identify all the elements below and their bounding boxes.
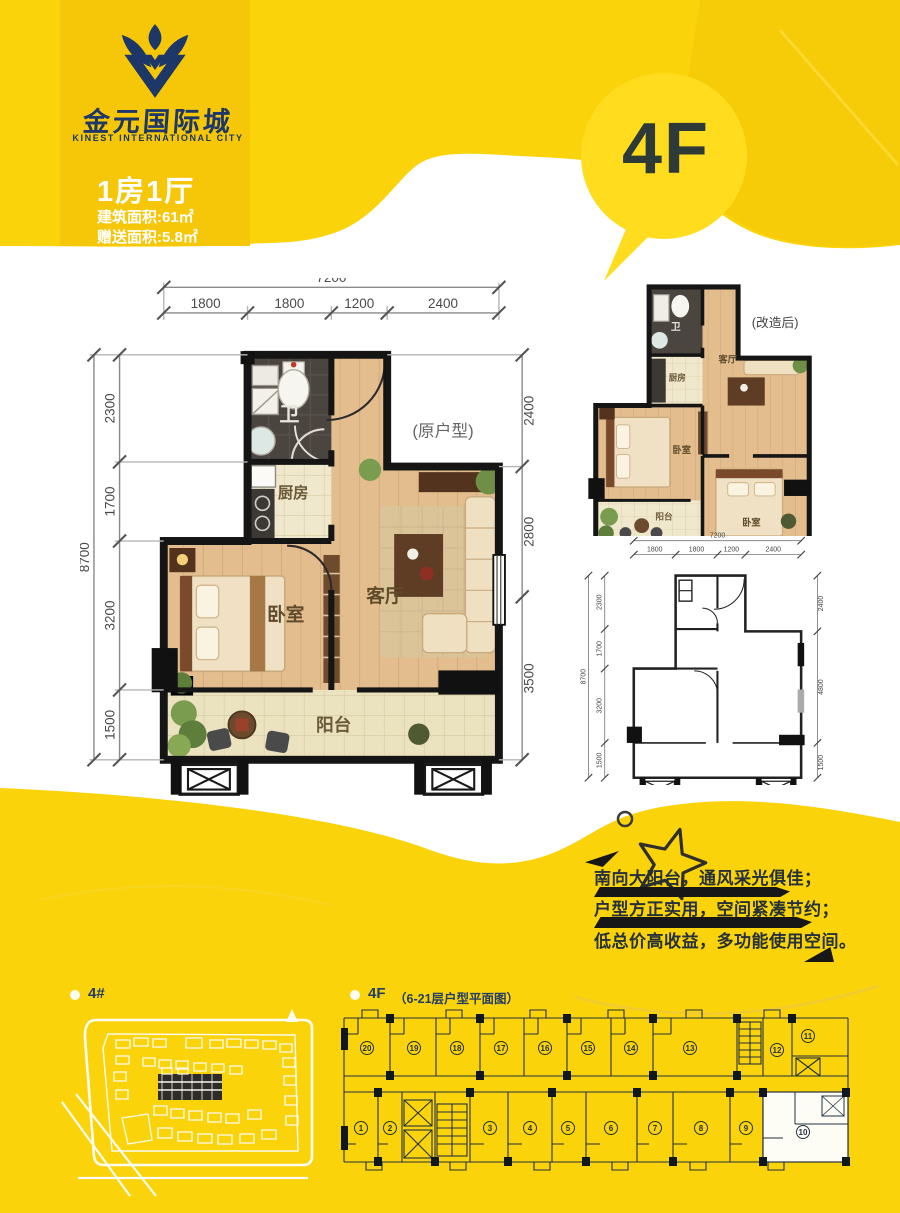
svg-text:2: 2 (388, 1124, 393, 1133)
svg-text:11: 11 (804, 1032, 813, 1041)
svg-text:3: 3 (488, 1124, 493, 1133)
svg-text:4800: 4800 (818, 679, 825, 695)
svg-text:2300: 2300 (102, 393, 117, 423)
svg-text:2800: 2800 (521, 517, 536, 547)
floor-plate-plan: 20 19 18 17 16 15 14 13 12 11 1 2 3 4 5 … (340, 1008, 900, 1200)
svg-text:7: 7 (653, 1124, 658, 1133)
svg-text:17: 17 (497, 1044, 506, 1053)
svg-text:2400: 2400 (428, 296, 458, 311)
gift-area-text: 赠送面积:5.8㎡ (97, 226, 198, 247)
svg-text:(改造后): (改造后) (752, 315, 799, 330)
svg-text:1700: 1700 (597, 641, 604, 657)
svg-text:厨房: 厨房 (278, 483, 309, 502)
floor-bubble-tail (604, 222, 654, 281)
svg-text:1500: 1500 (818, 755, 825, 771)
svg-text:阳台: 阳台 (316, 714, 351, 735)
plate-unit-numbers: 20 19 18 17 16 15 14 13 12 11 1 2 3 4 5 … (355, 1030, 815, 1139)
svg-text:4: 4 (528, 1124, 533, 1133)
svg-text:1200: 1200 (724, 546, 740, 553)
svg-text:12: 12 (773, 1046, 782, 1055)
brand-logo-icon (110, 22, 200, 100)
svg-text:7200: 7200 (316, 278, 346, 285)
floor-plate-bullet (350, 990, 360, 1000)
plate-highlight-unit (763, 1092, 848, 1162)
svg-text:2400: 2400 (818, 596, 825, 612)
svg-text:2400: 2400 (765, 546, 781, 553)
svg-text:客厅: 客厅 (718, 354, 737, 365)
svg-text:1: 1 (359, 1124, 364, 1133)
svg-text:8700: 8700 (580, 669, 587, 685)
svg-text:7200: 7200 (710, 532, 726, 539)
svg-text:6: 6 (609, 1124, 614, 1133)
svg-text:3200: 3200 (102, 600, 117, 630)
floor-plate-desc: （6-21层户型平面图） (394, 988, 519, 1007)
north-arrow-icon (286, 1009, 298, 1022)
svg-text:15: 15 (584, 1044, 593, 1053)
svg-text:1500: 1500 (102, 710, 117, 740)
poster-page: 金元国际城 KINEST INTERNATIONAL CITY 1房1厅 建筑面… (0, 0, 900, 1213)
svg-text:1700: 1700 (102, 486, 117, 516)
svg-text:卧室: 卧室 (673, 444, 691, 455)
svg-text:5: 5 (566, 1124, 571, 1133)
svg-text:10: 10 (799, 1128, 808, 1137)
svg-text:1500: 1500 (597, 752, 604, 768)
svg-text:卫: 卫 (671, 321, 681, 333)
built-area-text: 建筑面积:61㎡ (97, 206, 194, 227)
svg-text:19: 19 (410, 1044, 419, 1053)
svg-text:厨房: 厨房 (669, 371, 687, 382)
svg-text:3500: 3500 (521, 663, 536, 693)
selling-point-2: 户型方正实用，空间紧凑节约； (594, 895, 839, 920)
main-floor-plan: 7200 1800 1800 1200 2400 8700 2300 1700 … (80, 278, 585, 818)
svg-text:1800: 1800 (689, 546, 705, 553)
schematic-walls (627, 576, 805, 785)
svg-text:20: 20 (363, 1044, 372, 1053)
svg-text:2400: 2400 (521, 396, 536, 426)
svg-text:(原户型): (原户型) (412, 421, 473, 440)
svg-text:1200: 1200 (344, 296, 374, 311)
floor-badge: 4F (586, 108, 746, 190)
site-plan-map (58, 1006, 330, 1198)
selling-point-1: 南向大阳台，通风采光俱佳； (594, 864, 822, 889)
site-plan-label: 4# (88, 985, 105, 1002)
brand-name-english: KINEST INTERNATIONAL CITY (58, 133, 258, 143)
svg-text:3200: 3200 (597, 698, 604, 714)
svg-text:卫: 卫 (279, 404, 299, 426)
svg-text:9: 9 (744, 1124, 749, 1133)
svg-text:18: 18 (453, 1044, 462, 1053)
svg-text:卧室: 卧室 (267, 604, 304, 625)
selling-point-3: 低总价高收益，多功能使用空间。 (594, 927, 857, 952)
svg-text:8700: 8700 (80, 542, 92, 572)
svg-text:1800: 1800 (191, 296, 221, 311)
svg-text:阳台: 阳台 (655, 511, 673, 522)
site-highlight-building (158, 1068, 222, 1100)
renovated-floor-plan: 卫 厨房 客厅 卧室 卧室 阳台 (改造后) (585, 281, 820, 536)
svg-text:客厅: 客厅 (365, 585, 404, 606)
svg-text:8: 8 (699, 1124, 704, 1133)
floor-plate-floor-label: 4F (368, 985, 386, 1002)
schematic-floor-plan: 7200 1800 1800 1200 2400 8700 2300 1700 … (578, 530, 836, 785)
svg-text:1800: 1800 (647, 546, 663, 553)
svg-text:1800: 1800 (274, 296, 304, 311)
svg-text:2300: 2300 (597, 594, 604, 610)
svg-text:13: 13 (686, 1044, 695, 1053)
unit-type-label: 1房1厅 (97, 168, 195, 210)
svg-text:卧室: 卧室 (742, 517, 760, 528)
svg-text:14: 14 (627, 1044, 636, 1053)
site-plan-bullet (70, 990, 80, 1000)
svg-text:16: 16 (541, 1044, 550, 1053)
